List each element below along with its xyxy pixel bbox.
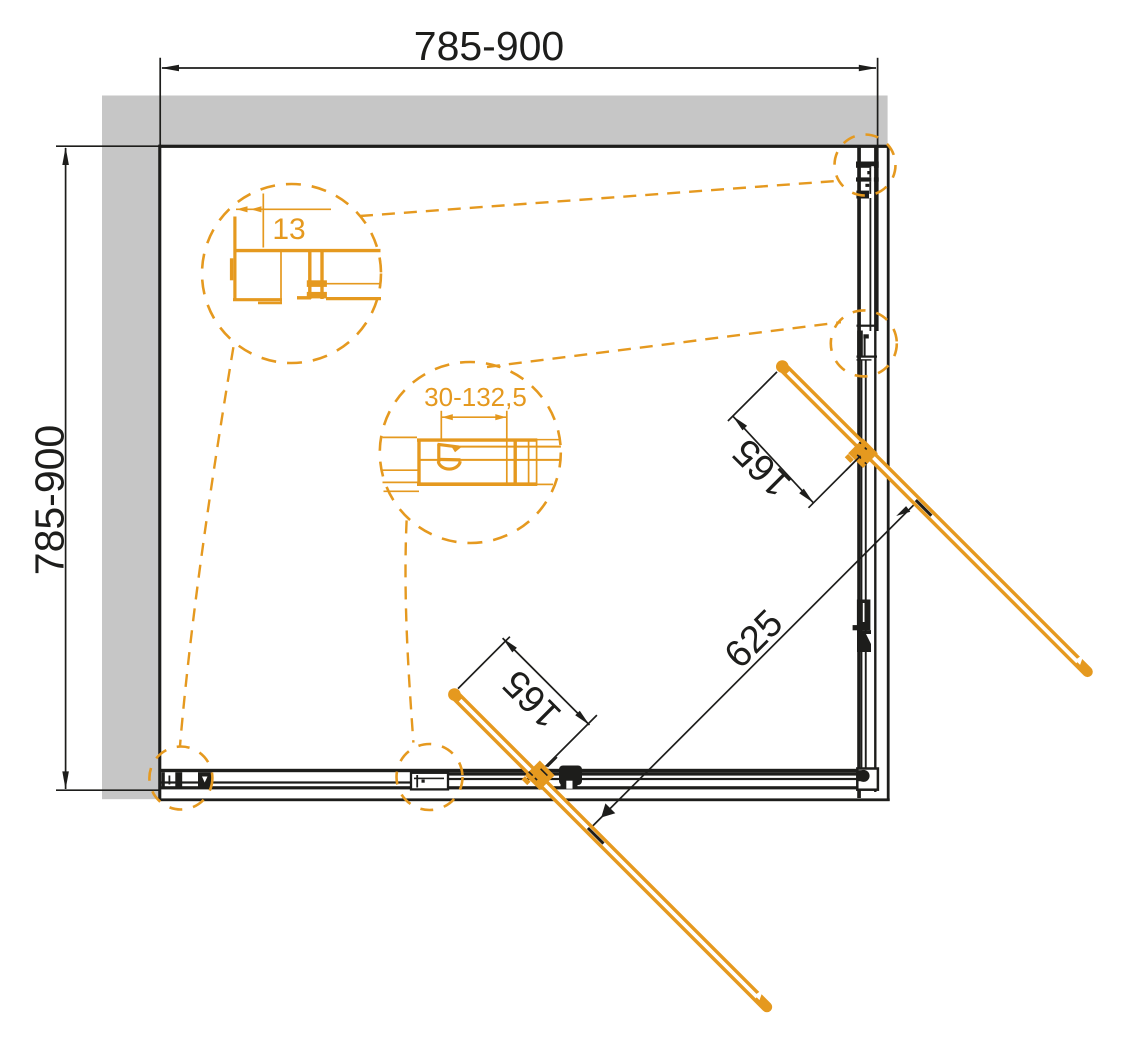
svg-text:785-900: 785-900 — [414, 23, 564, 69]
svg-text:625: 625 — [717, 602, 792, 677]
svg-text:13: 13 — [272, 213, 305, 246]
svg-text:30-132,5: 30-132,5 — [424, 382, 527, 412]
svg-text:165: 165 — [495, 661, 570, 736]
svg-text:785-900: 785-900 — [27, 425, 73, 575]
svg-text:165: 165 — [725, 430, 800, 505]
